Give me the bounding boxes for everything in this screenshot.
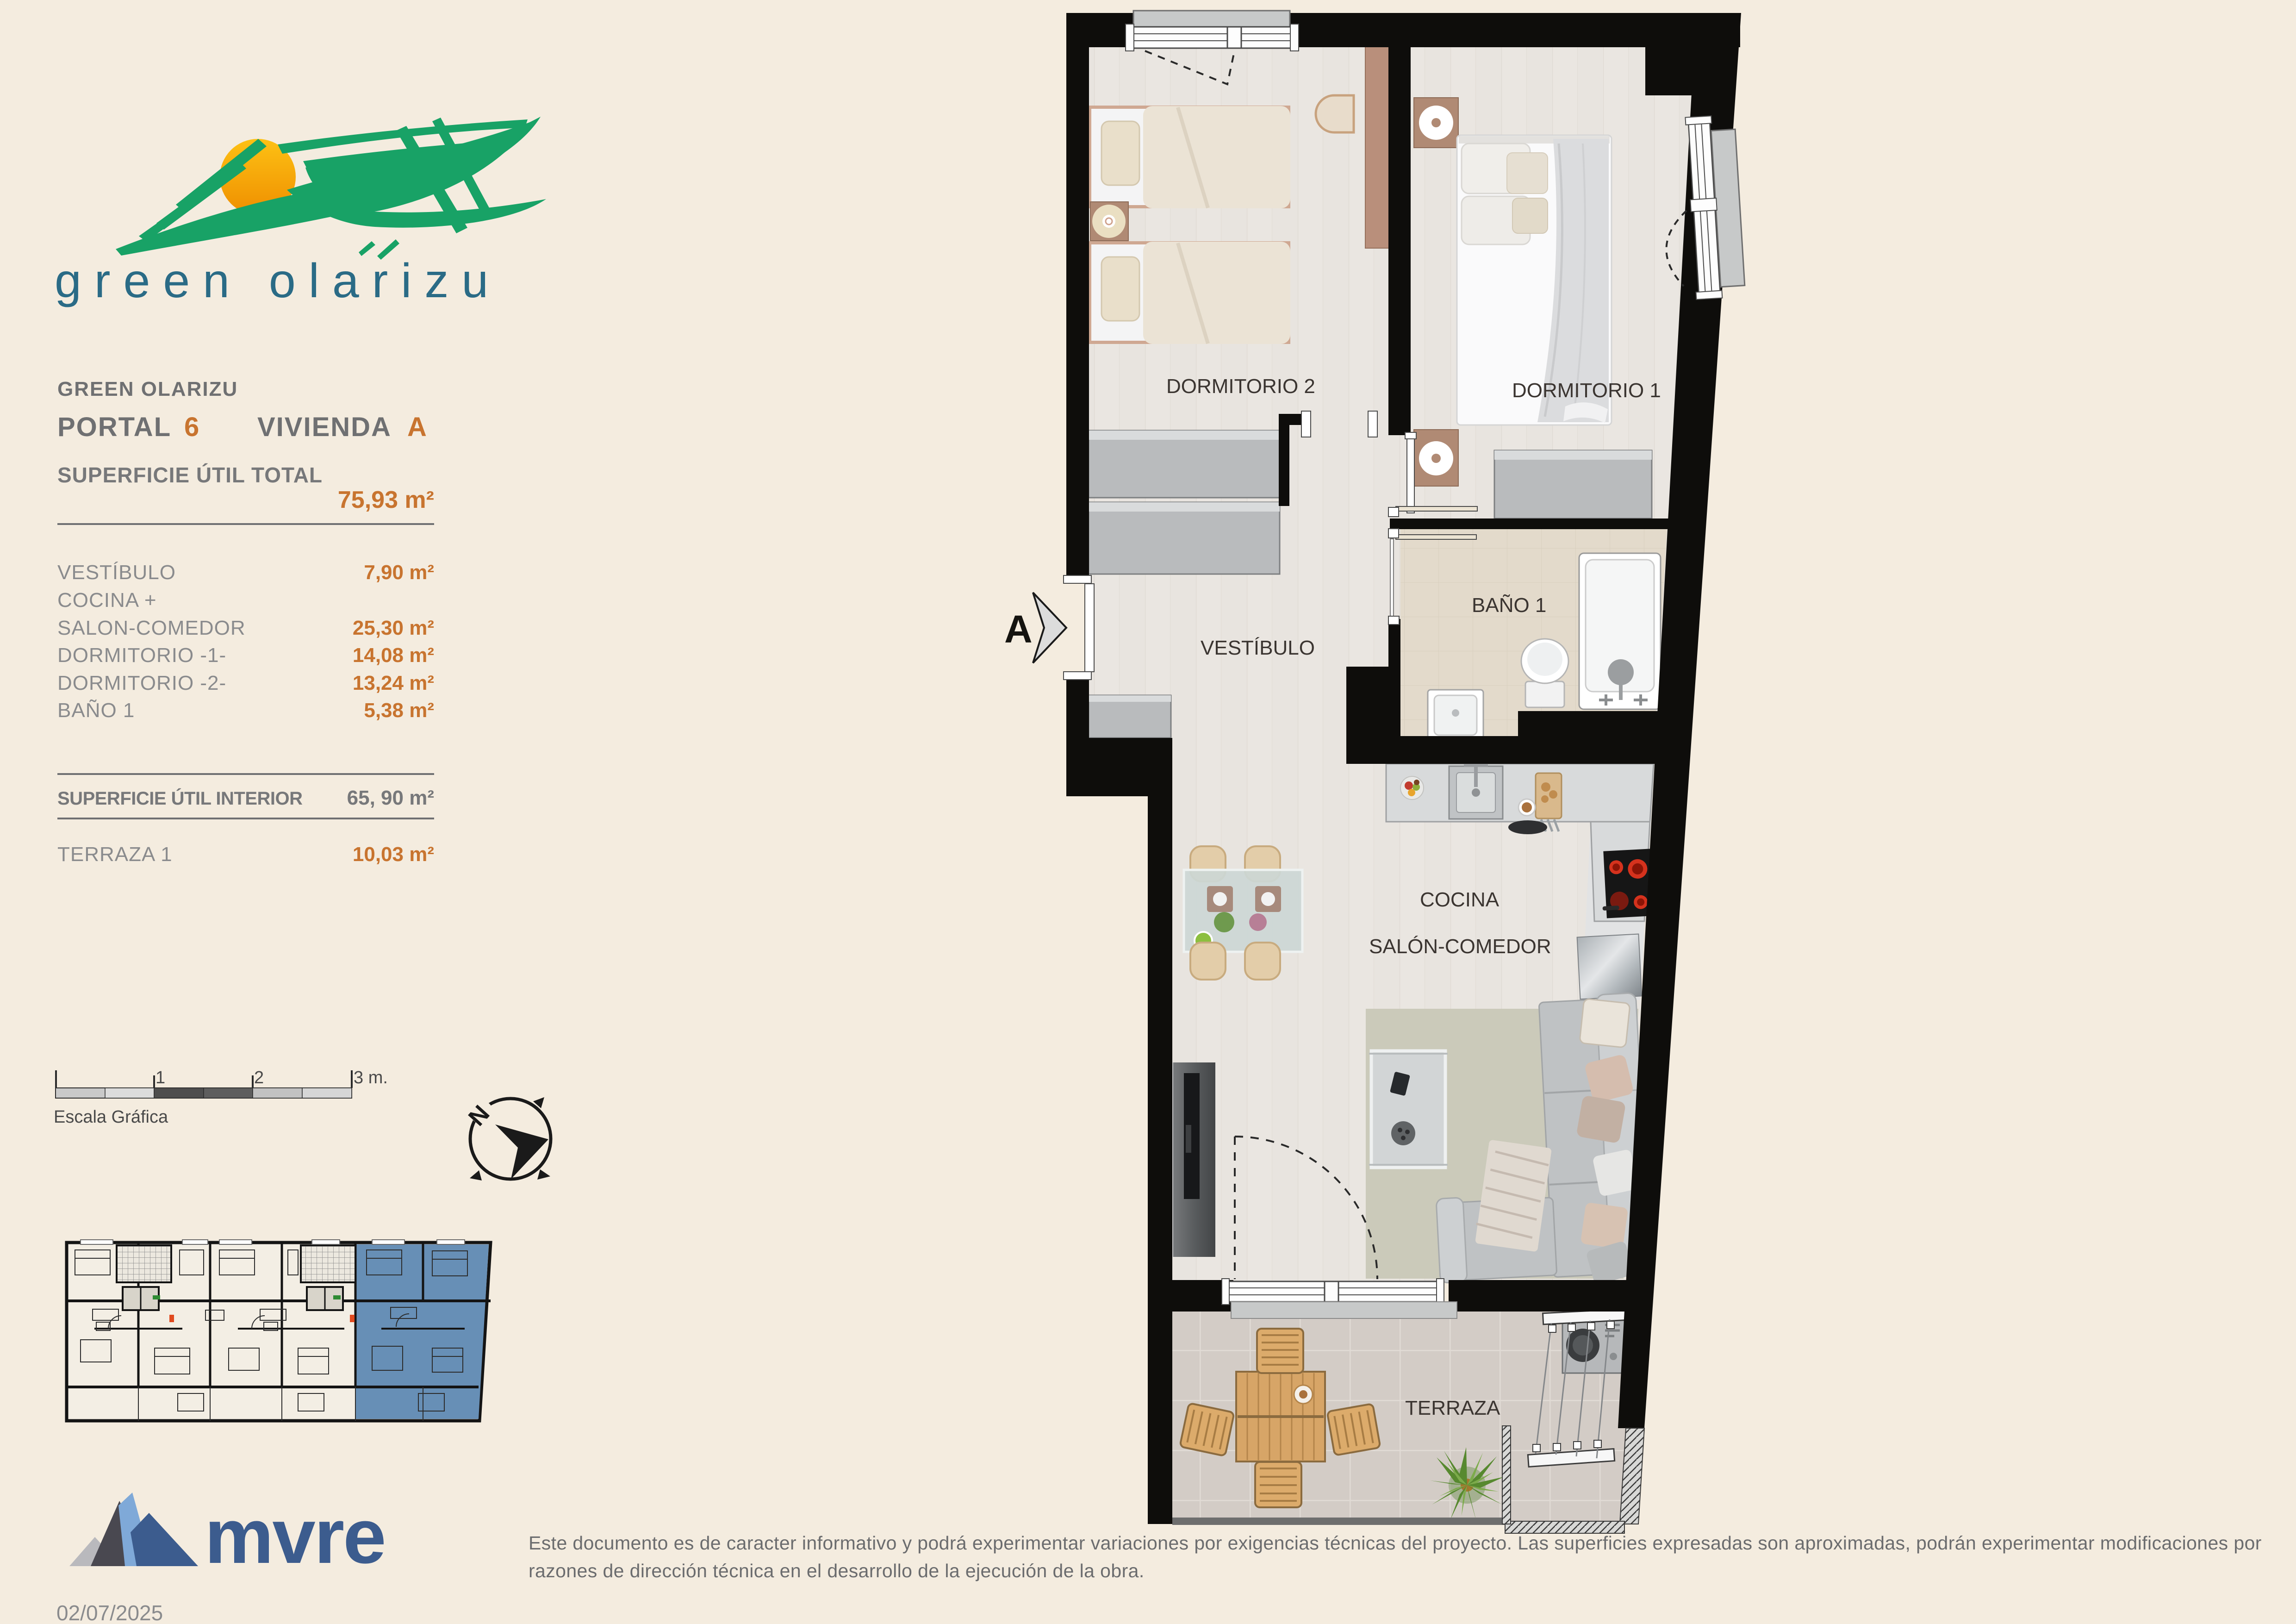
svg-text:Escala Gráfica: Escala Gráfica [54,1107,168,1127]
svg-text:DORMITORIO 1: DORMITORIO 1 [1512,379,1661,402]
svg-text:SUPERFICIE ÚTIL INTERIOR: SUPERFICIE ÚTIL INTERIOR [57,787,303,809]
svg-text:DORMITORIO 2: DORMITORIO 2 [1166,375,1315,398]
svg-text:TERRAZA: TERRAZA [1405,1397,1500,1419]
svg-text:1: 1 [156,1068,165,1087]
svg-text:VESTÍBULO: VESTÍBULO [57,561,176,584]
svg-text:25,30 m²: 25,30 m² [353,617,434,639]
svg-text:razones de dirección técnica e: razones de dirección técnica en el desar… [529,1560,1145,1581]
svg-text:COCINA: COCINA [1420,888,1500,911]
svg-text:PORTAL: PORTAL [57,412,171,442]
svg-text:5,38 m²: 5,38 m² [364,699,434,722]
svg-text:SUPERFICIE ÚTIL TOTAL: SUPERFICIE ÚTIL TOTAL [57,463,323,487]
svg-text:10,03 m²: 10,03 m² [353,843,434,866]
svg-text:BAÑO 1: BAÑO 1 [57,699,135,722]
svg-text:A: A [407,412,427,442]
svg-text:02/07/2025: 02/07/2025 [56,1601,163,1624]
svg-text:2: 2 [254,1068,264,1087]
svg-text:BAÑO 1: BAÑO 1 [1472,593,1546,617]
svg-text:COCINA +: COCINA + [57,589,157,612]
svg-text:DORMITORIO -2-: DORMITORIO -2- [57,672,226,694]
svg-text:mvre: mvre [205,1493,385,1580]
svg-text:Este documento es de caracter: Este documento es de caracter informativ… [529,1532,2262,1554]
svg-text:DORMITORIO -1-: DORMITORIO -1- [57,644,226,667]
svg-text:VESTÍBULO: VESTÍBULO [1201,637,1315,659]
svg-text:TERRAZA 1: TERRAZA 1 [57,843,173,866]
svg-text:75,93 m²: 75,93 m² [338,487,434,513]
svg-text:VIVIENDA: VIVIENDA [257,412,392,442]
svg-text:SALÓN-COMEDOR: SALÓN-COMEDOR [1369,935,1551,958]
svg-text:14,08 m²: 14,08 m² [353,644,434,667]
svg-text:green olarizu: green olarizu [55,254,501,308]
svg-text:GREEN OLARIZU: GREEN OLARIZU [57,378,238,400]
svg-text:6: 6 [184,412,199,442]
svg-text:13,24 m²: 13,24 m² [353,672,434,694]
svg-text:A: A [1004,607,1033,651]
svg-text:SALON-COMEDOR: SALON-COMEDOR [57,617,246,639]
svg-text:65, 90 m²: 65, 90 m² [347,787,434,809]
svg-text:7,90 m²: 7,90 m² [364,561,434,584]
svg-text:3 m.: 3 m. [354,1068,388,1087]
